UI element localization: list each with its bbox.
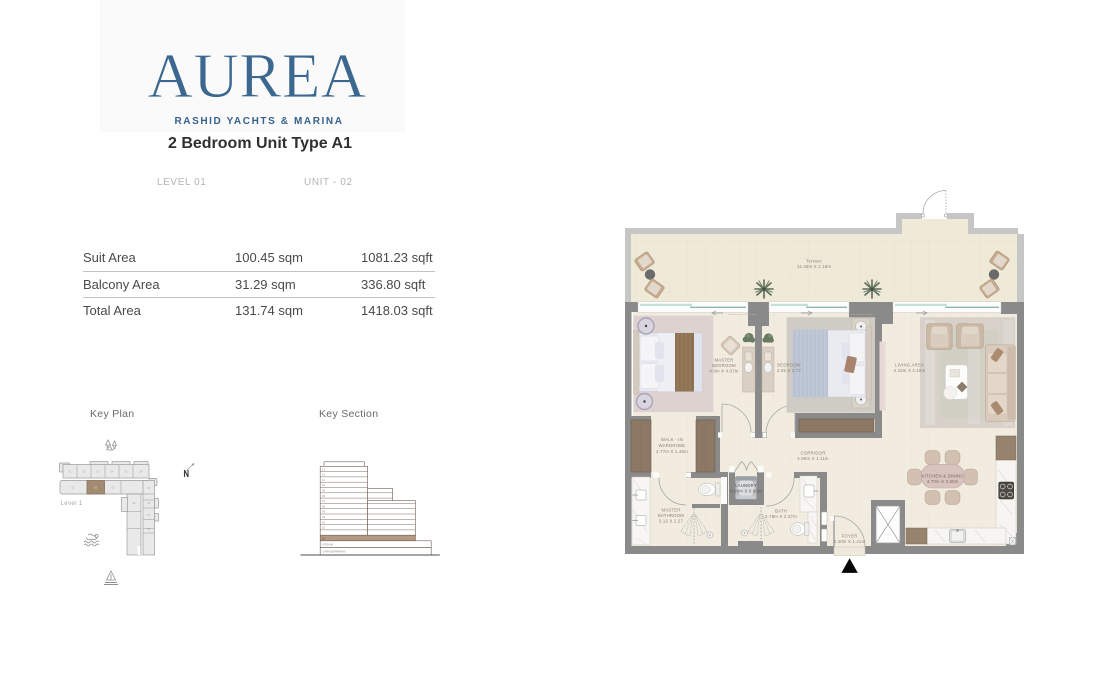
- svg-text:MASTER: MASTER: [714, 358, 733, 363]
- svg-text:BEDROOM: BEDROOM: [712, 363, 736, 368]
- svg-text:MASTER: MASTER: [661, 508, 680, 513]
- svg-text:BATH: BATH: [775, 509, 787, 514]
- svg-text:3.30m X 1.41m: 3.30m X 1.41m: [834, 539, 866, 544]
- svg-text:KITCHEN & DINING: KITCHEN & DINING: [922, 474, 965, 479]
- svg-text:Level 1: Level 1: [61, 500, 83, 507]
- svg-text:2.79m X 2.27m: 2.79m X 2.27m: [765, 514, 797, 519]
- svg-text:BEDROOM: BEDROOM: [777, 363, 801, 368]
- svg-text:3.12 X 2.27: 3.12 X 2.27: [659, 519, 684, 524]
- svg-text:LAUNDRY: LAUNDRY: [735, 483, 757, 488]
- svg-text:CORRIDOR: CORRIDOR: [801, 451, 826, 456]
- svg-text:4.42m X 4.18m: 4.42m X 4.18m: [894, 368, 926, 373]
- svg-text:GARAGE/PARKING: GARAGE/PARKING: [323, 550, 346, 554]
- svg-text:4.96m X 1.11m: 4.96m X 1.11m: [797, 456, 829, 461]
- svg-text:WALK - IN: WALK - IN: [661, 437, 683, 442]
- svg-text:4.0m X 4.07m: 4.0m X 4.07m: [709, 369, 738, 374]
- svg-text:12.48m X 2.16m: 12.48m X 2.16m: [797, 264, 832, 269]
- svg-text:4.05 X 3.77: 4.05 X 3.77: [777, 368, 802, 373]
- svg-text:FOYER: FOYER: [842, 534, 858, 539]
- svg-text:LIVING AREA: LIVING AREA: [895, 363, 924, 368]
- svg-text:BATHROOM: BATHROOM: [658, 513, 684, 518]
- svg-text:4.70m X 3.50m: 4.70m X 3.50m: [927, 479, 959, 484]
- svg-text:WARDROBE: WARDROBE: [659, 443, 686, 448]
- svg-text:PODIUM: PODIUM: [323, 542, 333, 546]
- svg-text:Terrace: Terrace: [806, 259, 822, 264]
- svg-text:0.90m X 0.80m: 0.90m X 0.80m: [730, 489, 762, 494]
- svg-text:2.77m X 1.48m: 2.77m X 1.48m: [656, 449, 688, 454]
